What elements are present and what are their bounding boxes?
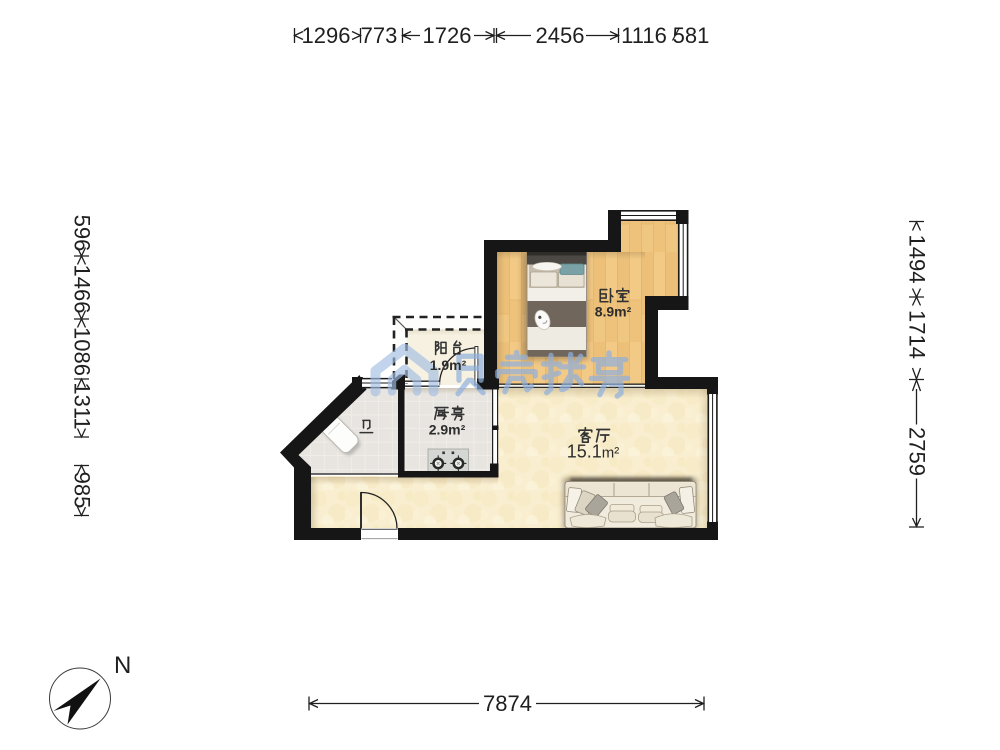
svg-text:1116: 1116 [621,23,667,48]
svg-text:7874: 7874 [483,691,532,716]
svg-text:1494: 1494 [905,235,930,284]
svg-text:1296: 1296 [302,23,351,48]
svg-text:2.9m²: 2.9m² [429,422,466,438]
svg-text:1086: 1086 [70,327,95,376]
svg-text:1714: 1714 [905,310,930,359]
svg-text:1.9m²: 1.9m² [430,357,467,373]
svg-text:8.9m²: 8.9m² [595,304,632,320]
svg-text:985: 985 [70,472,95,509]
svg-text:1726: 1726 [423,23,472,48]
svg-text:596: 596 [70,215,95,252]
svg-text:581: 581 [673,23,710,48]
svg-text:2759: 2759 [905,427,930,476]
svg-text:1311: 1311 [70,382,95,429]
svg-text:2456: 2456 [536,23,585,48]
svg-text:N: N [114,652,131,679]
svg-text:773: 773 [361,23,398,48]
svg-text:1466: 1466 [70,265,95,314]
svg-text:15.1m²: 15.1m² [567,442,620,462]
